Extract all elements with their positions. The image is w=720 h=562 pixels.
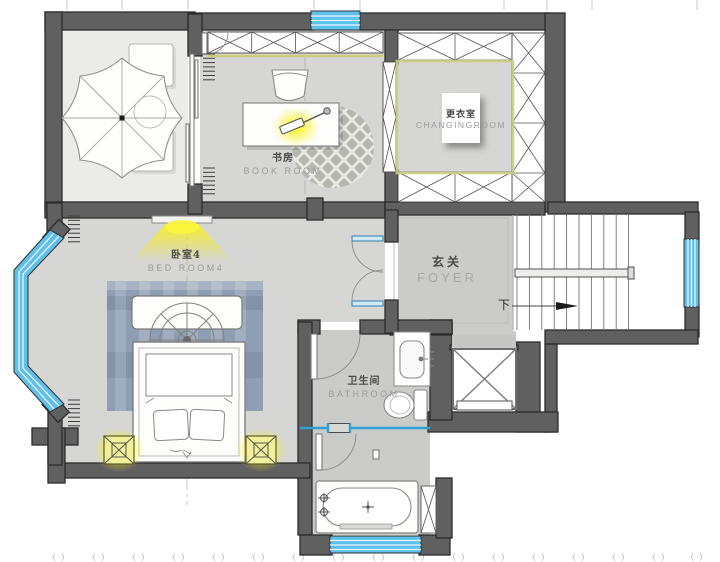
changing-room-name-en: CHANGINGROOM (416, 120, 506, 130)
bathtub-side-panel (421, 486, 436, 533)
elevator-shaft (452, 335, 516, 410)
book-room-wardrobe (208, 32, 383, 56)
dimension-ticks-bottom (54, 553, 702, 561)
patio-umbrella (62, 58, 182, 178)
toilet (384, 390, 427, 420)
bed (133, 342, 245, 462)
nightstand-left (93, 428, 145, 472)
nightstand-right (235, 428, 287, 472)
stairwell-right-window (684, 239, 699, 307)
floor-plan: 书房 BOOK ROOM 更衣室 CHANGINGROOM 卧室4 BED RO… (0, 0, 720, 562)
bathroom-bottom-window (330, 536, 421, 553)
elevator-door (457, 401, 512, 410)
book-room-top-window (311, 11, 360, 30)
floor-plan-drawing (0, 0, 720, 562)
stairs-down-label: 下 (498, 296, 510, 313)
foyer-floor (398, 215, 513, 325)
bathtub (316, 481, 418, 533)
stairs-handrail (515, 269, 631, 277)
bathroom-vanity-sink (394, 332, 434, 386)
changing-room-name-zh: 更衣室 (446, 107, 476, 120)
room-label-changing-room: 更衣室 CHANGINGROOM (442, 93, 480, 143)
